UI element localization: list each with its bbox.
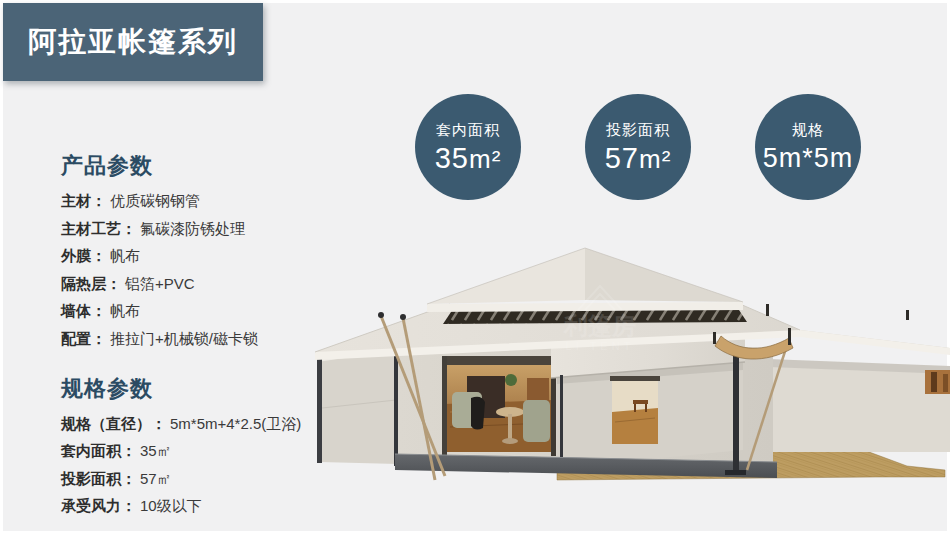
param-row: 主材工艺：氟碳漆防锈处理	[61, 219, 381, 238]
series-banner: 阿拉亚帐篷系列	[3, 3, 263, 81]
param-label: 套内面积：	[61, 442, 136, 459]
badge-projection-area: 投影面积 57m²	[585, 94, 691, 200]
dark-coat	[471, 397, 485, 430]
awning-post	[560, 375, 563, 465]
product-sheet: 阿拉亚帐篷系列 产品参数 主材：优质碳钢钢管 主材工艺：氟碳漆防锈处理 外膜：帆…	[0, 0, 950, 534]
param-value: 帆布	[110, 302, 140, 319]
badge-label: 投影面积	[606, 121, 670, 140]
plant	[505, 374, 517, 386]
param-value: 5m*5m+4*2.5(卫浴)	[170, 415, 301, 432]
param-label: 规格（直径）：	[61, 415, 166, 432]
series-title: 阿拉亚帐篷系列	[28, 23, 238, 61]
badge-unit: m²	[639, 144, 671, 174]
awning-section	[551, 334, 745, 468]
param-value: 优质碳钢钢管	[110, 192, 200, 209]
badge-unit: m²	[469, 144, 501, 174]
glass-window	[442, 356, 556, 456]
param-value: 氟碳漆防锈处理	[140, 220, 245, 237]
param-value: 推拉门+机械锁/磁卡锁	[110, 330, 258, 347]
param-label: 配置：	[61, 330, 106, 347]
badge-value: 35m²	[435, 143, 502, 174]
armchair	[523, 400, 550, 442]
badge-label: 规格	[792, 121, 824, 140]
badge-label: 套内面积	[436, 121, 500, 140]
param-value: 10级以下	[140, 497, 202, 514]
param-label: 主材：	[61, 192, 106, 209]
product-params-heading: 产品参数	[61, 151, 381, 181]
badge-interior-area: 套内面积 35m²	[415, 94, 521, 200]
page-background: 阿拉亚帐篷系列 产品参数 主材：优质碳钢钢管 主材工艺：氟碳漆防锈处理 外膜：帆…	[3, 3, 947, 531]
param-label: 隔热层：	[61, 275, 121, 292]
param-label: 投影面积：	[61, 470, 136, 487]
param-value: 铝箔+PVC	[125, 275, 195, 292]
roof-finial	[906, 310, 909, 320]
param-value: 35㎡	[140, 442, 172, 459]
badge-value: 5m*5m	[763, 143, 854, 173]
side-canvas-wing	[317, 344, 401, 466]
svg-text:利篷房: 利篷房	[563, 312, 636, 339]
param-label: 外膜：	[61, 247, 106, 264]
param-label: 墙体：	[61, 302, 106, 319]
param-label: 承受风力：	[61, 497, 136, 514]
wing-post	[317, 356, 322, 463]
badge-size: 规格 5m*5m	[755, 94, 861, 200]
param-value: 57㎡	[140, 470, 172, 487]
param-value: 帆布	[110, 247, 140, 264]
annex-wall	[743, 358, 950, 452]
doorway	[610, 376, 660, 444]
roof-finial	[766, 304, 769, 316]
tent-illustration: 利篷房 LI TENT	[295, 242, 950, 532]
param-row: 主材：优质碳钢钢管	[61, 191, 381, 210]
small-table	[633, 400, 648, 404]
svg-text:LI TENT: LI TENT	[566, 340, 635, 352]
badge-value: 57m²	[605, 143, 672, 174]
param-label: 主材工艺：	[61, 220, 136, 237]
